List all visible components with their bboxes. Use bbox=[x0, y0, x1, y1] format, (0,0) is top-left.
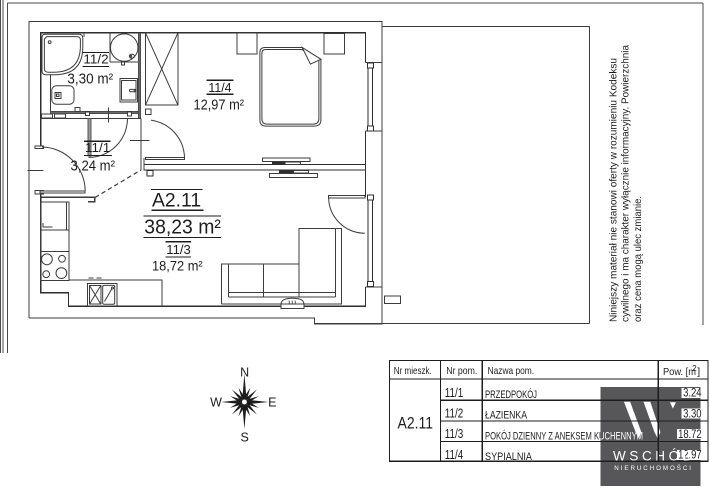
svg-text:Pow. [m: Pow. [m bbox=[663, 366, 696, 378]
svg-text:N: N bbox=[240, 366, 249, 380]
svg-text:oraz cena mogą ulec zmianie.: oraz cena mogą ulec zmianie. bbox=[633, 196, 644, 322]
svg-text:E: E bbox=[268, 396, 276, 410]
svg-text:NIERUCHOMOŚCI: NIERUCHOMOŚCI bbox=[614, 464, 693, 472]
svg-text:Nr mieszk.: Nr mieszk. bbox=[394, 365, 432, 377]
svg-text:Niniejszy materiał nie stanowi: Niniejszy materiał nie stanowi oferty w … bbox=[608, 58, 619, 322]
svg-text:PRZEDPOKÓJ: PRZEDPOKÓJ bbox=[485, 388, 537, 401]
svg-text:cywilnego i ma charakter wyłąc: cywilnego i ma charakter wyłącznie infor… bbox=[621, 45, 632, 322]
svg-text:11/4: 11/4 bbox=[208, 80, 231, 95]
svg-text:11/2: 11/2 bbox=[83, 51, 108, 66]
svg-text:11/1: 11/1 bbox=[85, 140, 110, 155]
svg-text:18,72 m²: 18,72 m² bbox=[152, 259, 203, 274]
svg-text:11/3: 11/3 bbox=[445, 427, 464, 441]
svg-text:38,23 m²: 38,23 m² bbox=[144, 216, 221, 239]
svg-text:ŁAZIENKA: ŁAZIENKA bbox=[485, 410, 528, 422]
svg-text:3,30 m²: 3,30 m² bbox=[67, 71, 113, 87]
svg-text:18.72: 18.72 bbox=[678, 427, 702, 441]
svg-text:]: ] bbox=[697, 366, 700, 378]
svg-text:3.30: 3.30 bbox=[683, 406, 702, 420]
svg-text:S: S bbox=[241, 431, 249, 445]
svg-text:11/3: 11/3 bbox=[166, 242, 191, 257]
svg-text:3,24 m²: 3,24 m² bbox=[71, 159, 116, 175]
svg-text:W: W bbox=[210, 396, 222, 410]
svg-text:A2.11: A2.11 bbox=[152, 190, 201, 212]
svg-text:12,97 m²: 12,97 m² bbox=[194, 98, 245, 114]
svg-text:3.24: 3.24 bbox=[683, 386, 702, 400]
svg-text:11/2: 11/2 bbox=[445, 407, 464, 421]
svg-text:11/1: 11/1 bbox=[445, 386, 464, 400]
svg-text:Nr pom.: Nr pom. bbox=[446, 365, 477, 377]
svg-text:Nazwa pom.: Nazwa pom. bbox=[488, 365, 534, 377]
svg-text:11/4: 11/4 bbox=[445, 448, 464, 462]
svg-text:A2.11: A2.11 bbox=[398, 414, 434, 432]
